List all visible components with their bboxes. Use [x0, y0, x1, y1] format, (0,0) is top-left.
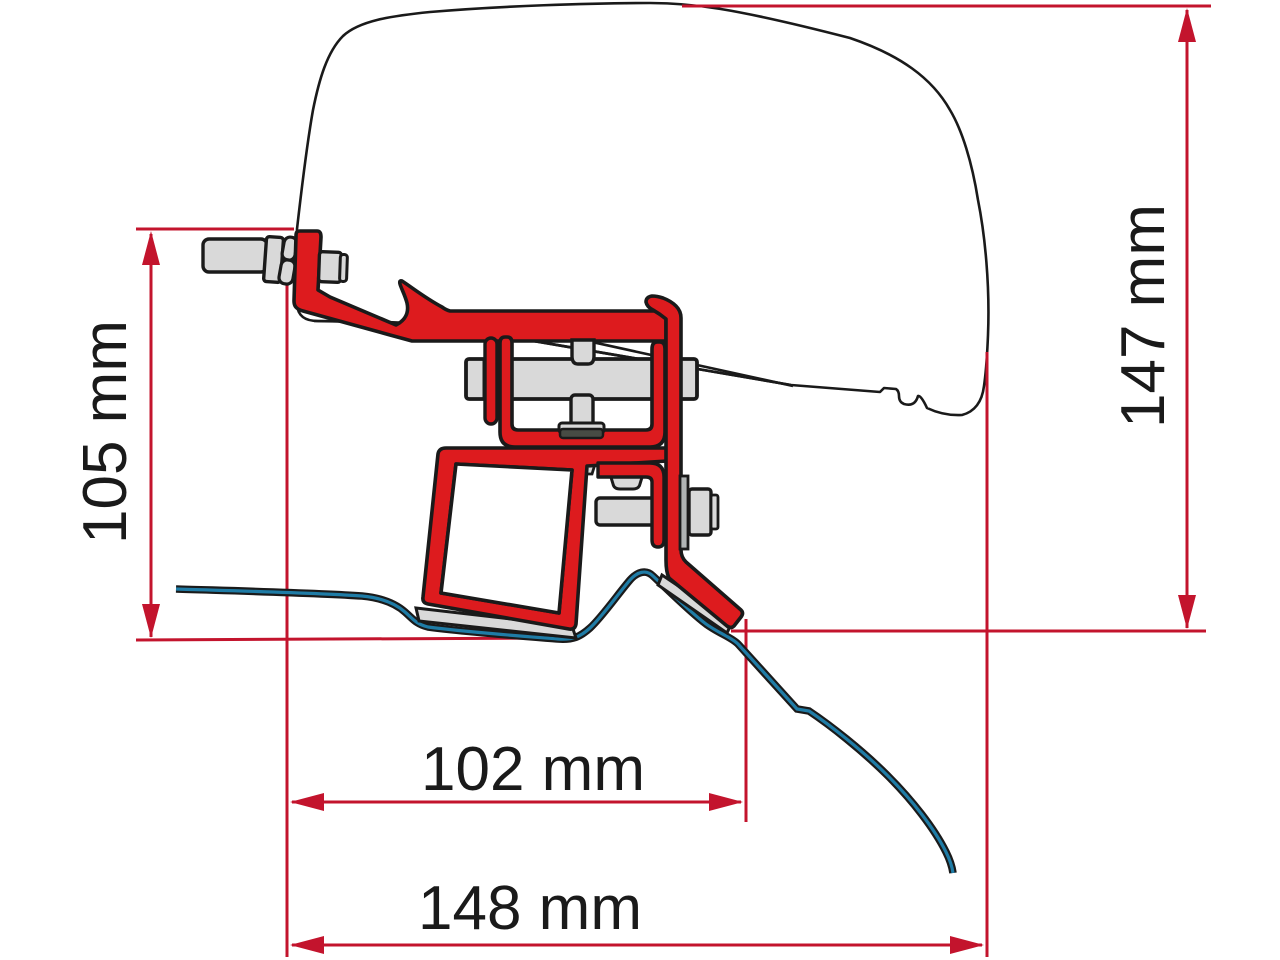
svg-text:148 mm: 148 mm [418, 874, 642, 943]
svg-text:147 mm: 147 mm [1109, 204, 1178, 428]
svg-text:102 mm: 102 mm [421, 735, 645, 804]
svg-text:105 mm: 105 mm [71, 320, 140, 544]
